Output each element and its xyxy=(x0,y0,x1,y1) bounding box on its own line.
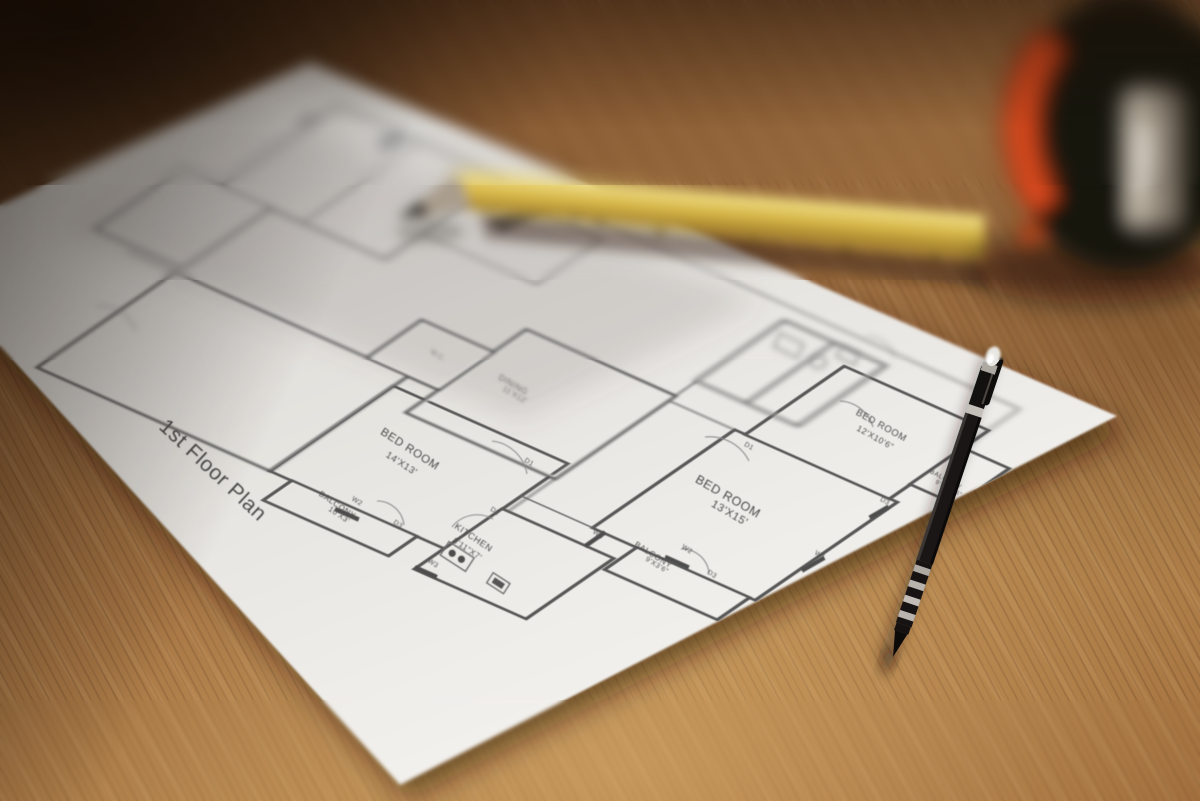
tape-measure-belt-clip xyxy=(1128,92,1180,232)
pencil-mark xyxy=(748,236,756,244)
tape-measure xyxy=(970,0,1200,304)
pencil-tip-shadow-on-paper xyxy=(396,221,464,243)
belt-clip-slot xyxy=(1128,222,1180,231)
pencil-mark xyxy=(656,228,664,236)
pencil-mark xyxy=(842,245,850,253)
tape-measure-orange-glimpse xyxy=(1019,223,1041,245)
fixture-mark xyxy=(741,144,767,161)
pencil-mark xyxy=(572,213,578,219)
pencil-mark xyxy=(597,218,603,224)
floor-plan-photo-scene: 1st Floor Plan BED ROOM 14'X13' KITCHEN … xyxy=(0,0,1200,801)
belt-clip-screw xyxy=(1147,177,1157,187)
pencil-mark xyxy=(932,252,940,260)
fixture-mark xyxy=(647,127,679,148)
photo-artwork: 1st Floor Plan BED ROOM 14'X13' KITCHEN … xyxy=(0,0,1200,801)
